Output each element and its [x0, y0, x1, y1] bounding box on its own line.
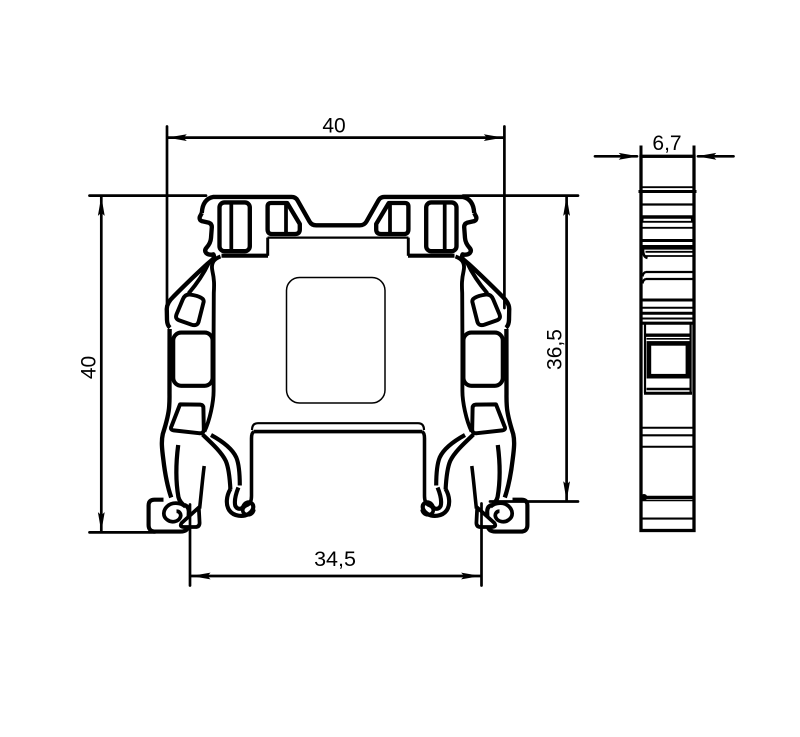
svg-text:6,7: 6,7: [652, 132, 681, 155]
svg-text:34,5: 34,5: [314, 547, 356, 571]
svg-text:40: 40: [322, 115, 345, 138]
svg-text:36,5: 36,5: [544, 329, 567, 370]
svg-text:40: 40: [78, 356, 101, 379]
